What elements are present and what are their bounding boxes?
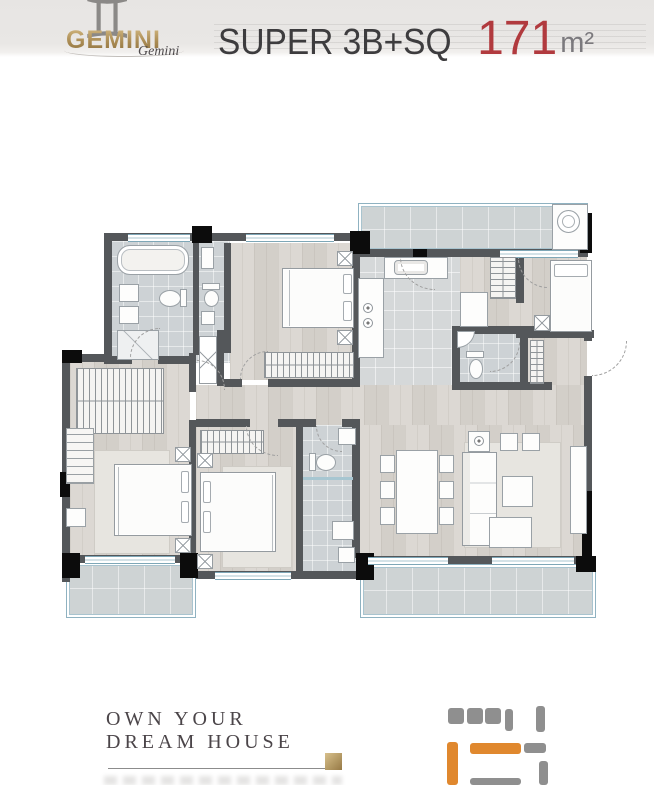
walk-in-closet <box>76 368 164 434</box>
keymap-block <box>448 708 464 724</box>
dining-table <box>396 450 438 534</box>
ottoman <box>522 433 540 451</box>
column <box>62 553 80 578</box>
dining-chair <box>380 455 395 473</box>
column <box>350 231 370 254</box>
entry-closet <box>490 257 516 299</box>
column <box>192 226 212 243</box>
dining-chair <box>380 507 395 525</box>
toilet-tank <box>466 351 484 358</box>
lamp-icon <box>474 436 484 446</box>
toilet-tank <box>309 453 316 471</box>
fridge <box>460 292 488 327</box>
wall-segment <box>296 425 303 578</box>
toilet <box>316 454 336 471</box>
tv-console <box>570 446 587 534</box>
keymap-block <box>470 778 521 785</box>
sink <box>119 306 139 324</box>
wall-segment <box>189 353 196 392</box>
nightstand <box>337 330 353 345</box>
window <box>246 234 334 242</box>
wall-segment <box>268 379 360 387</box>
tagline-line-1: OWN YOUR <box>106 708 247 731</box>
coffee-table <box>502 476 533 507</box>
single-bed <box>550 260 592 332</box>
window <box>85 556 175 564</box>
wall-segment <box>104 233 112 362</box>
faded-footnote <box>104 776 342 785</box>
dresser <box>66 508 86 527</box>
dining-chair <box>439 455 454 473</box>
keymap-block <box>539 761 548 785</box>
window <box>368 557 448 565</box>
toilet-tank <box>180 289 187 307</box>
balcony-bottom-left <box>66 562 196 618</box>
bed-pillow <box>554 264 588 277</box>
bathtub <box>117 245 189 275</box>
window <box>128 234 190 242</box>
sink <box>201 247 214 269</box>
bed-pillow <box>203 481 211 503</box>
stove-burner-icon <box>363 318 373 328</box>
bed-foot-line <box>272 475 273 551</box>
bed <box>200 472 276 552</box>
dining-chair <box>380 481 395 499</box>
column <box>180 553 198 578</box>
bed-pillow <box>181 471 189 493</box>
window <box>492 557 574 565</box>
toilet <box>469 359 483 379</box>
wardrobe <box>264 352 354 378</box>
keymap-unit-highlight <box>447 742 458 785</box>
wall-segment <box>224 243 231 353</box>
bed-pillow <box>203 511 211 533</box>
toilet <box>159 290 181 307</box>
nightstand <box>175 447 191 462</box>
bed-foot-line <box>118 467 119 535</box>
vanity <box>201 311 215 325</box>
footer-rule <box>108 768 326 769</box>
keymap-block <box>467 708 483 724</box>
column <box>62 350 82 363</box>
floor-plan <box>0 0 654 785</box>
wall-segment <box>196 419 250 427</box>
entry-door-arc <box>592 341 627 376</box>
corridor-cabinet <box>530 340 544 384</box>
keymap-block <box>485 708 501 724</box>
floorplan-poster: ♊ GEMINI Gemini SUPER 3B+SQ 171 m² <box>0 0 654 785</box>
building-key-map <box>440 698 560 785</box>
nightstand <box>197 453 213 468</box>
toilet <box>204 290 219 307</box>
vanity <box>332 521 354 540</box>
bed-foot-line <box>289 270 290 326</box>
shower-glass <box>303 477 353 480</box>
gold-square-accent <box>325 753 342 770</box>
side-table <box>534 315 550 331</box>
stove-burner-icon <box>363 303 373 313</box>
hallway-floor <box>196 385 587 425</box>
column <box>576 556 596 572</box>
ottoman <box>500 433 518 451</box>
bed-pillow <box>181 501 189 523</box>
dining-chair <box>439 481 454 499</box>
wash-basin <box>557 210 580 233</box>
tagline-line-2: DREAM HOUSE <box>106 731 294 754</box>
keymap-block <box>505 709 513 731</box>
keymap-unit-highlight <box>470 743 521 754</box>
sink <box>119 284 139 302</box>
toilet-tank <box>202 283 220 290</box>
bed <box>282 268 354 328</box>
nightstand <box>197 554 213 569</box>
dining-chair <box>439 507 454 525</box>
window <box>215 572 291 580</box>
nightstand <box>175 538 191 553</box>
bed-pillow <box>343 274 352 294</box>
nightstand <box>337 251 353 266</box>
wall-segment <box>224 379 242 387</box>
master-bed <box>114 464 192 536</box>
bed-pillow <box>343 301 352 321</box>
sofa-chaise <box>489 517 532 548</box>
keymap-block <box>524 743 546 753</box>
keymap-block <box>536 706 545 732</box>
shelf-unit <box>66 428 94 484</box>
balcony-bottom-right <box>360 564 596 618</box>
vanity <box>338 547 355 563</box>
